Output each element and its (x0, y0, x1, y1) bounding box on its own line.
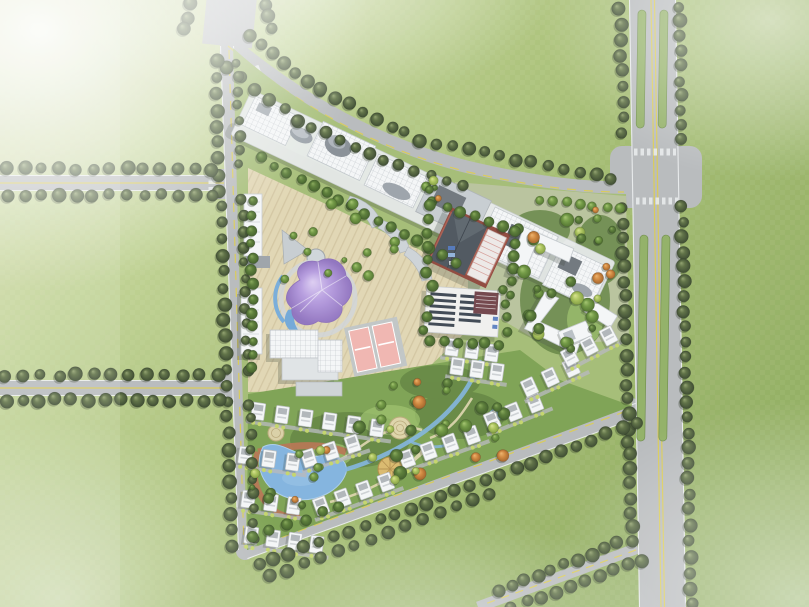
haze-overlay (0, 0, 809, 607)
master-plan-rendering: Aerial master-plan rendering of a triang… (0, 0, 809, 607)
site-plan-svg (0, 0, 809, 607)
